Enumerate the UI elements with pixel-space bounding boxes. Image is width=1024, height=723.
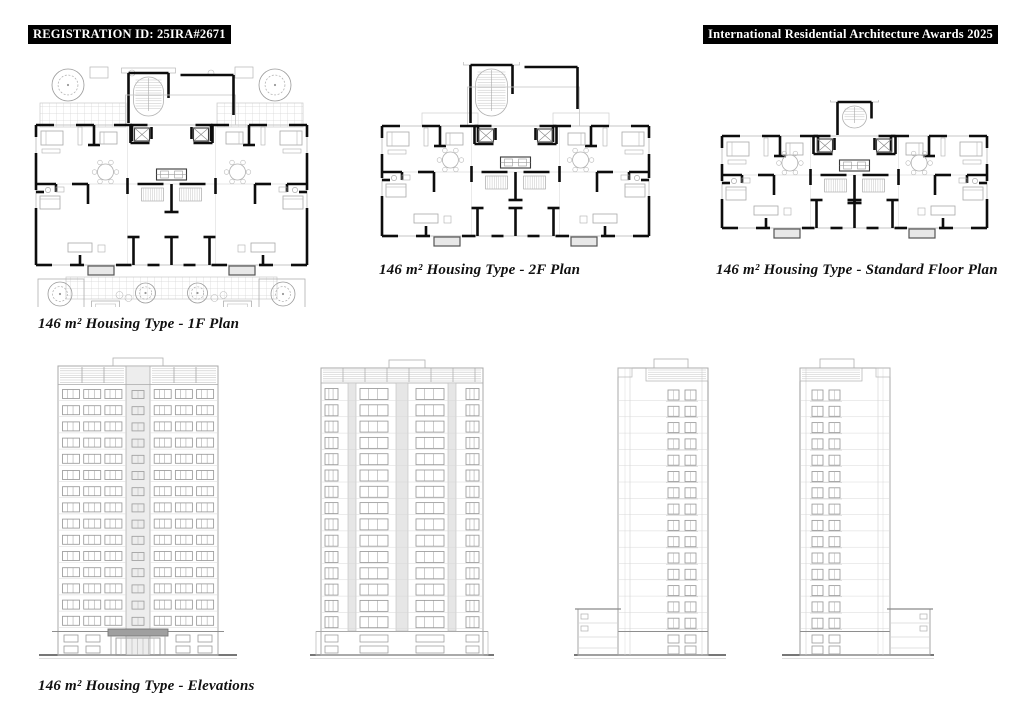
registration-badge: REGISTRATION ID: 25IRA#2671	[28, 25, 231, 44]
floor-plan-2f-drawing	[374, 62, 657, 254]
elevation-front-panel	[37, 352, 239, 672]
awards-badge: International Residential Architecture A…	[703, 25, 998, 44]
presentation-board: REGISTRATION ID: 25IRA#2671 Internationa…	[0, 0, 1024, 723]
elevation-side-right-drawing	[780, 352, 936, 672]
elevation-side-left-drawing	[572, 352, 728, 672]
plan-std-panel	[714, 100, 995, 254]
plan-1f-label: 146 m² Housing Type - 1F Plan	[38, 316, 239, 333]
floor-plan-standard-drawing	[714, 100, 995, 254]
elevation-rear-drawing	[308, 352, 496, 672]
plan-1f-panel	[28, 57, 315, 307]
floor-plan-1f-drawing	[28, 57, 315, 307]
plan-2f-panel	[374, 62, 657, 254]
elevation-front-drawing	[37, 352, 239, 672]
elevations-label: 146 m² Housing Type - Elevations	[38, 678, 255, 695]
elevation-rear-panel	[308, 352, 496, 672]
elevation-side-right-panel	[780, 352, 936, 672]
plan-std-label: 146 m² Housing Type - Standard Floor Pla…	[716, 262, 998, 279]
plan-2f-label: 146 m² Housing Type - 2F Plan	[379, 262, 580, 279]
elevation-side-left-panel	[572, 352, 728, 672]
